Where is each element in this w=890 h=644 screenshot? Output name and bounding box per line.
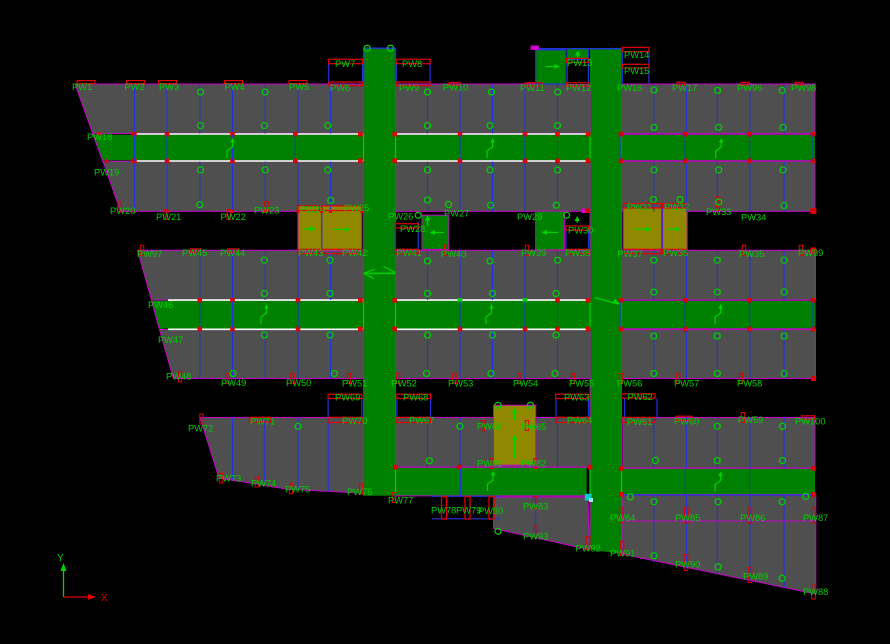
svg-text:PW14: PW14 — [624, 50, 649, 60]
svg-text:PW29: PW29 — [517, 212, 542, 222]
svg-text:PW39: PW39 — [521, 248, 546, 258]
svg-text:PW74: PW74 — [251, 479, 276, 489]
svg-text:PW66: PW66 — [477, 422, 502, 432]
svg-text:PW56: PW56 — [617, 379, 642, 389]
svg-text:PW43: PW43 — [298, 248, 323, 258]
svg-text:PW67: PW67 — [409, 416, 434, 426]
svg-text:PW90: PW90 — [675, 560, 700, 570]
svg-text:X: X — [101, 593, 108, 604]
svg-text:PW69: PW69 — [335, 393, 360, 403]
svg-text:PW82: PW82 — [521, 459, 546, 469]
svg-text:PW18: PW18 — [87, 132, 112, 142]
svg-text:PW40: PW40 — [441, 249, 466, 259]
svg-text:PW81: PW81 — [477, 459, 502, 469]
svg-text:PW99: PW99 — [798, 248, 823, 258]
svg-text:PW41: PW41 — [397, 248, 422, 258]
svg-text:PW52: PW52 — [392, 379, 417, 389]
svg-text:PW5: PW5 — [289, 82, 309, 92]
svg-text:PW76: PW76 — [347, 487, 372, 497]
svg-text:PW33: PW33 — [706, 207, 731, 217]
svg-text:PW35: PW35 — [739, 249, 764, 259]
svg-text:PW86: PW86 — [740, 513, 765, 523]
svg-text:PW4: PW4 — [225, 82, 245, 92]
svg-text:PW30: PW30 — [568, 226, 593, 236]
svg-text:PW62: PW62 — [628, 392, 653, 402]
svg-text:PW53: PW53 — [448, 379, 473, 389]
svg-text:PW3: PW3 — [159, 82, 179, 92]
svg-text:PW10: PW10 — [443, 83, 468, 93]
svg-text:PW11: PW11 — [520, 83, 545, 93]
svg-text:PW21: PW21 — [156, 212, 181, 222]
svg-text:PW46: PW46 — [148, 300, 173, 310]
svg-text:PW50: PW50 — [286, 378, 311, 388]
svg-text:Y: Y — [57, 553, 64, 564]
svg-text:PW93: PW93 — [523, 532, 548, 542]
svg-text:PW87: PW87 — [803, 513, 828, 523]
svg-text:PW64: PW64 — [567, 416, 592, 426]
svg-text:PW85: PW85 — [675, 513, 700, 523]
svg-text:PW78: PW78 — [431, 506, 456, 516]
svg-text:PW96: PW96 — [737, 83, 762, 93]
svg-text:PW97: PW97 — [137, 249, 162, 259]
svg-text:PW16: PW16 — [617, 83, 642, 93]
svg-text:PW8: PW8 — [402, 59, 422, 69]
svg-text:PW48: PW48 — [166, 372, 191, 382]
svg-text:PW59: PW59 — [738, 415, 763, 425]
svg-text:PW36: PW36 — [663, 248, 688, 258]
svg-text:PW57: PW57 — [674, 379, 699, 389]
svg-text:PW38: PW38 — [565, 248, 590, 258]
svg-text:PW58: PW58 — [737, 379, 762, 389]
svg-text:PW37: PW37 — [618, 249, 643, 259]
svg-text:PW98: PW98 — [791, 83, 816, 93]
svg-text:PW92: PW92 — [576, 544, 601, 554]
svg-text:PW49: PW49 — [221, 378, 246, 388]
svg-text:PW15: PW15 — [624, 66, 649, 76]
svg-text:PW32: PW32 — [664, 202, 689, 212]
svg-text:PW24: PW24 — [300, 205, 325, 215]
svg-text:PW68: PW68 — [403, 393, 428, 403]
svg-text:PW71: PW71 — [250, 417, 275, 427]
svg-text:PW89: PW89 — [743, 572, 768, 582]
svg-text:PW22: PW22 — [221, 212, 246, 222]
svg-text:PW51: PW51 — [342, 379, 367, 389]
svg-text:PW7: PW7 — [335, 59, 355, 69]
svg-text:PW20: PW20 — [110, 206, 135, 216]
svg-text:PW34: PW34 — [741, 213, 766, 223]
svg-text:PW54: PW54 — [513, 379, 538, 389]
svg-text:PW31: PW31 — [627, 202, 652, 212]
svg-text:PW55: PW55 — [569, 379, 594, 389]
svg-text:PW9: PW9 — [399, 83, 419, 93]
svg-text:PW6: PW6 — [330, 83, 350, 93]
svg-text:PW19: PW19 — [94, 168, 119, 178]
svg-text:PW63: PW63 — [564, 393, 589, 403]
svg-text:PW100: PW100 — [795, 417, 826, 427]
svg-text:PW27: PW27 — [444, 209, 469, 219]
svg-text:PW60: PW60 — [674, 417, 699, 427]
svg-text:PW26: PW26 — [388, 212, 413, 222]
svg-text:PW47: PW47 — [158, 335, 183, 345]
svg-text:PW61: PW61 — [627, 417, 652, 427]
svg-text:PW28: PW28 — [400, 224, 425, 234]
svg-text:PW88: PW88 — [803, 587, 828, 597]
svg-text:PW1: PW1 — [72, 82, 92, 92]
svg-text:PW77: PW77 — [388, 496, 413, 506]
svg-text:PW73: PW73 — [216, 474, 241, 484]
svg-text:PW42: PW42 — [342, 248, 367, 258]
svg-text:PW91: PW91 — [610, 549, 635, 559]
svg-text:PW75: PW75 — [285, 485, 310, 495]
svg-text:PW45: PW45 — [182, 248, 207, 258]
svg-text:PW25: PW25 — [344, 203, 369, 213]
svg-text:PW72: PW72 — [188, 424, 213, 434]
svg-text:PW83: PW83 — [523, 502, 548, 512]
svg-text:PW65: PW65 — [521, 422, 546, 432]
svg-text:PW44: PW44 — [220, 248, 245, 258]
svg-text:PW13: PW13 — [567, 58, 592, 68]
svg-text:PW80: PW80 — [478, 506, 503, 516]
svg-text:PW17: PW17 — [672, 83, 697, 93]
svg-text:PW12: PW12 — [566, 83, 591, 93]
svg-text:PW2: PW2 — [125, 82, 145, 92]
svg-text:PW70: PW70 — [342, 416, 367, 426]
svg-text:PW23: PW23 — [254, 206, 279, 216]
svg-text:PW84: PW84 — [610, 513, 635, 523]
